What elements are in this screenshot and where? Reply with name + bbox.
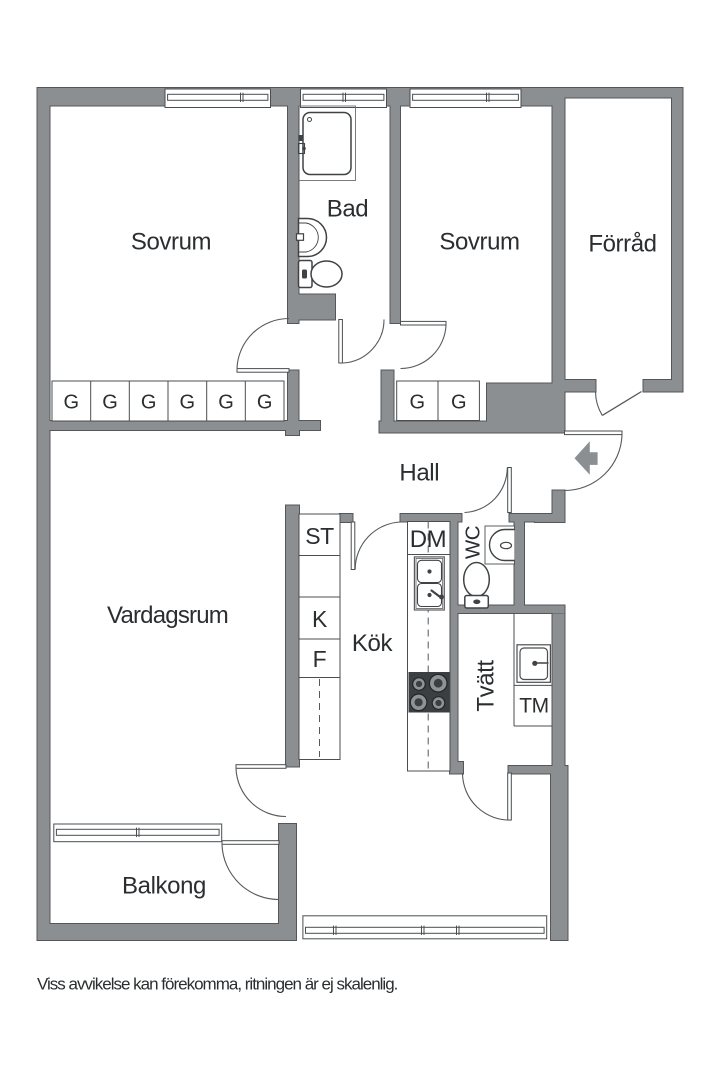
svg-text:Sovrum: Sovrum <box>131 229 211 256</box>
svg-text:G: G <box>257 392 273 414</box>
svg-text:G: G <box>64 392 80 414</box>
svg-text:G: G <box>218 392 234 414</box>
svg-text:Kök: Kök <box>352 630 394 657</box>
svg-text:Förråd: Förråd <box>588 231 656 258</box>
svg-text:Sovrum: Sovrum <box>439 229 519 256</box>
svg-text:G: G <box>451 392 467 414</box>
svg-text:Hall: Hall <box>399 460 439 487</box>
svg-text:Tvätt: Tvätt <box>473 660 500 712</box>
svg-text:Bad: Bad <box>327 196 369 223</box>
svg-text:F: F <box>313 646 327 672</box>
svg-text:Balkong: Balkong <box>122 873 206 900</box>
svg-text:TM: TM <box>519 695 549 718</box>
svg-text:Vardagsrum: Vardagsrum <box>107 602 228 629</box>
svg-text:G: G <box>180 392 196 414</box>
svg-text:G: G <box>410 392 426 414</box>
svg-text:WC: WC <box>462 525 485 559</box>
svg-text:ST: ST <box>305 523 334 549</box>
svg-text:K: K <box>312 606 328 632</box>
svg-text:G: G <box>141 392 157 414</box>
svg-text:DM: DM <box>410 526 447 553</box>
svg-text:Viss avvikelse kan förekomma,: Viss avvikelse kan förekomma, ritningen … <box>37 975 398 994</box>
svg-text:G: G <box>102 392 118 414</box>
